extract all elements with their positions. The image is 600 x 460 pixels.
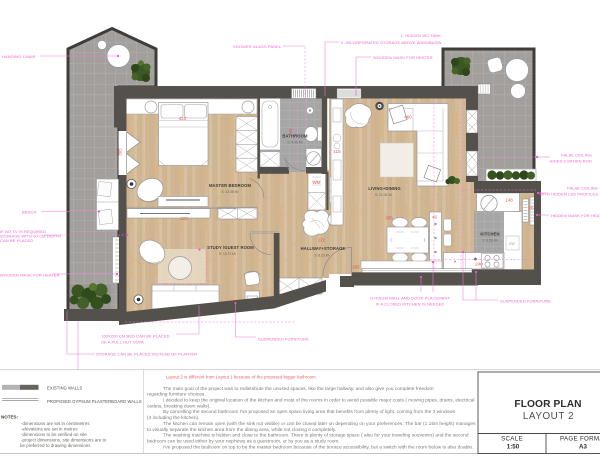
svg-text:NOTES:: NOTES: <box>1 415 19 420</box>
svg-text:IF A CLOSED KITCHEN IS NEEDED: IF A CLOSED KITCHEN IS NEEDED <box>376 302 445 307</box>
svg-text:1:50: 1:50 <box>507 444 520 451</box>
svg-text:bedroom can be used either by: bedroom can be used either by your nephe… <box>147 438 340 444</box>
svg-text:WM: WM <box>313 180 321 185</box>
svg-text:SUSPENDED FURNITURE: SUSPENDED FURNITURE <box>500 299 551 304</box>
svg-text:WOODEN MASK FOR HEATER: WOODEN MASK FOR HEATER <box>0 273 60 278</box>
svg-text:FALSE CEILING: FALSE CEILING <box>567 186 598 191</box>
svg-text:SHOWER GLASS PANEL: SHOWER GLASS PANEL <box>233 44 282 49</box>
svg-text:LIVING+DINING: LIVING+DINING <box>368 186 400 191</box>
svg-text:S: 8.23 M²: S: 8.23 M² <box>314 254 330 258</box>
svg-text:FLOOR PLAN: FLOOR PLAN <box>514 399 581 410</box>
svg-text:160X200 CM BED CAN BE PLACED: 160X200 CM BED CAN BE PLACED <box>101 334 170 339</box>
svg-text:The kitchen can remain open (w: The kitchen can remain open (with the si… <box>163 421 476 427</box>
svg-text:By cancelling the second bathr: By cancelling the second bathroom I've p… <box>163 409 456 415</box>
svg-text:115: 115 <box>333 149 341 154</box>
svg-text:-dimensions are set in centime: -dimensions are set in centimetres <box>21 421 90 426</box>
svg-text:OF A PULL OUT SOFA: OF A PULL OUT SOFA <box>101 340 144 345</box>
svg-text:WOODEN MASK FOR HEATER: WOODEN MASK FOR HEATER <box>373 55 433 60</box>
svg-text:PAGE FORMAT: PAGE FORMAT <box>560 436 600 443</box>
svg-text:to visually separate the kitch: to visually separate the kitchen area fr… <box>147 427 336 433</box>
svg-text:HIDDEN MASK FOR HEATER: HIDDEN MASK FOR HEATER <box>551 213 600 218</box>
svg-text:HANGING CHAIR: HANGING CHAIR <box>2 54 36 59</box>
svg-text:SCALE: SCALE <box>501 436 523 443</box>
svg-text:S: 6.58 M²: S: 6.58 M² <box>482 239 498 243</box>
svg-text:420: 420 <box>180 216 188 221</box>
svg-text:-dimensions to be verified on: -dimensions to be verified on site <box>21 432 87 437</box>
svg-text:A3: A3 <box>579 444 587 451</box>
svg-text:88: 88 <box>288 128 293 134</box>
svg-text:MASTER BEDROOM: MASTER BEDROOM <box>209 183 252 188</box>
svg-text:HIDES CURTAIN ROD: HIDES CURTAIN ROD <box>550 159 592 164</box>
svg-text:STORAGE CAN BE PLACED INSTEAD: STORAGE CAN BE PLACED INSTEAD OF PLANTER <box>96 352 197 357</box>
svg-text:265: 265 <box>352 265 360 270</box>
svg-text:420: 420 <box>179 116 187 121</box>
svg-text:I decided to keep the original: I decided to keep the original location … <box>163 398 475 404</box>
svg-text:The main goal of the project w: The main goal of the project was to redi… <box>163 386 434 392</box>
svg-text:305: 305 <box>118 148 123 156</box>
svg-text:S: 21.00 M²: S: 21.00 M² <box>375 193 393 197</box>
svg-text:outlets, breaking down walls).: outlets, breaking down walls). <box>147 403 211 409</box>
svg-text:BATHROOM: BATHROOM <box>282 134 308 139</box>
svg-text:EXISTING WALLS: EXISTING WALLS <box>47 386 83 391</box>
svg-text:PROPOSED GYPSUM PLASTERBOARD W: PROPOSED GYPSUM PLASTERBOARD WALLS <box>47 399 142 404</box>
svg-text:240: 240 <box>475 262 483 267</box>
svg-text:be preferred to drawing dimens: be preferred to drawing dimensions <box>20 443 91 448</box>
svg-text:LAYOUT 2: LAYOUT 2 <box>523 411 574 422</box>
svg-text:-project dimensions, site dime: -project dimensions, site dimensions are… <box>21 438 107 443</box>
svg-text:regarding furniture choices.: regarding furniture choices. <box>147 392 206 398</box>
svg-text:HALLWAY+STORAGE: HALLWAY+STORAGE <box>301 246 346 251</box>
svg-text:DW: DW <box>509 242 515 246</box>
svg-text:S: 13.35 M²: S: 13.35 M² <box>221 190 239 194</box>
svg-text:WITH HIDDEN LED PROFILES: WITH HIDDEN LED PROFILES <box>539 192 598 197</box>
svg-text:S: 4.46 M²: S: 4.46 M² <box>287 141 303 145</box>
svg-text:I've proposed the bedroom on t: I've proposed the bedroom on top to be t… <box>163 444 473 450</box>
svg-text:460: 460 <box>404 115 412 120</box>
svg-text:2. INCORPORATED STORAGE ABOVE: 2. INCORPORATED STORAGE ABOVE WASHBASIN <box>341 40 442 45</box>
svg-text:385: 385 <box>385 216 393 221</box>
svg-text:The washing machine is hidden: The washing machine is hidden and close … <box>163 433 469 439</box>
svg-text:148: 148 <box>505 198 513 203</box>
svg-text:GYPSUM WALL AND DOOR PLACEMENT: GYPSUM WALL AND DOOR PLACEMENT <box>370 296 451 301</box>
svg-text:-elevations are set in metres: -elevations are set in metres <box>21 427 78 432</box>
svg-text:KITCHEN: KITCHEN <box>480 232 499 237</box>
svg-text:46: 46 <box>432 215 438 220</box>
svg-text:28: 28 <box>528 206 534 211</box>
svg-text:CAN BE PLACED: CAN BE PLACED <box>0 238 33 243</box>
svg-text:Layout 2 is different from Lay: Layout 2 is different from Layout 1 beca… <box>166 375 317 380</box>
svg-text:BENCH: BENCH <box>22 210 37 215</box>
svg-text:1. HIDDEN WC TANK: 1. HIDDEN WC TANK <box>401 33 442 38</box>
svg-text:FALSE CEILING: FALSE CEILING <box>561 153 592 158</box>
svg-text:STUDY /GUEST ROOM: STUDY /GUEST ROOM <box>207 245 254 250</box>
svg-text:(4 including the kitchen).: (4 including the kitchen). <box>147 415 200 421</box>
svg-text:SUSPENDED FURNITURE: SUSPENDED FURNITURE <box>258 337 309 342</box>
svg-text:122: 122 <box>318 238 326 243</box>
svg-text:S: 13.71 M²: S: 13.71 M² <box>219 252 237 256</box>
